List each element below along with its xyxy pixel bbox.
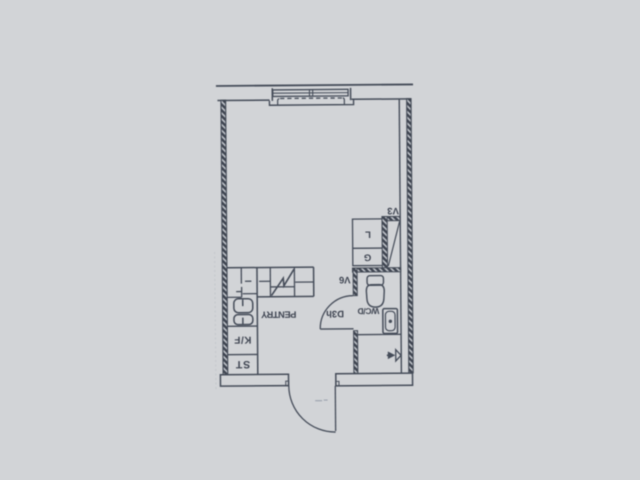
svg-text:G: G <box>364 251 371 262</box>
svg-text:PENTRY: PENTRY <box>260 309 296 319</box>
svg-text:ST: ST <box>235 358 250 370</box>
svg-text:V6: V6 <box>339 274 351 285</box>
svg-text:V3: V3 <box>387 205 399 216</box>
svg-text:D3h: D3h <box>326 308 344 319</box>
svg-text:WC/D: WC/D <box>358 306 380 316</box>
svg-text:K/F: K/F <box>234 334 252 345</box>
svg-text:L: L <box>365 228 371 239</box>
